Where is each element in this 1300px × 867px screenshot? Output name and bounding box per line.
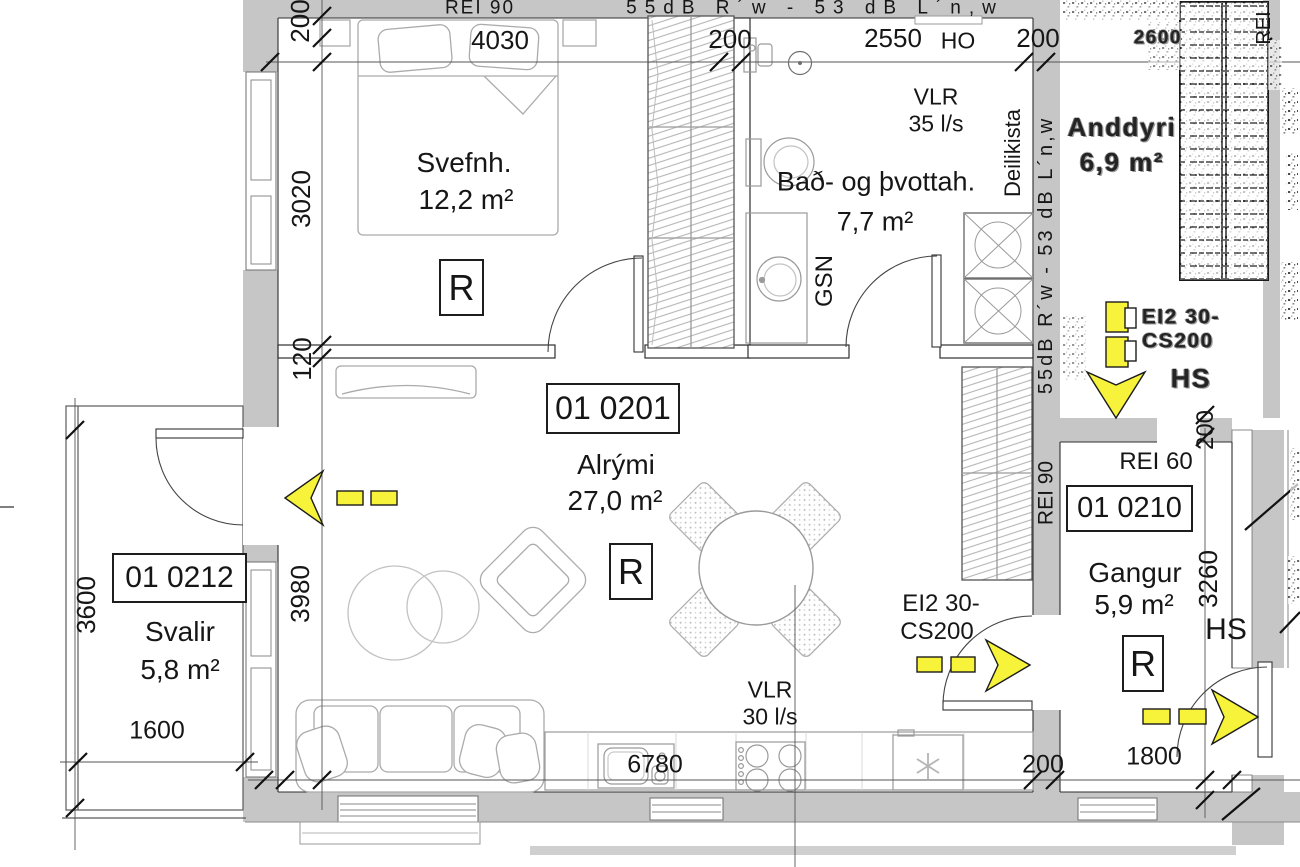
dim-svalir-3600: 3600 [73, 576, 99, 634]
dim-kitchen-200: 200 [1022, 753, 1064, 778]
fire-door-noisy-line1: EI2 30- [1142, 307, 1220, 328]
room-area-alrymi: 27,0 m² [568, 487, 663, 515]
sound-rating-top: 55dB R´w - 53 dB L´n,w [626, 0, 1004, 18]
room-area-anddyri: 6,9 m² [1080, 149, 1164, 175]
room-id-gangur: 01 0210 [1066, 485, 1193, 532]
dim-left-3020: 3020 [288, 170, 314, 228]
rug [348, 566, 479, 660]
dim-left-200: 200 [287, 0, 313, 43]
room-area-svalir: 5,8 m² [140, 656, 219, 684]
sideboard [336, 366, 476, 398]
exit-arrow-right-livingroom-icon [917, 640, 1030, 691]
dim-left-3980: 3980 [287, 565, 313, 623]
dim-gangur-200: 200 [1194, 410, 1218, 450]
washer-dryer [964, 213, 1033, 343]
room-id-gangur-text: 01 0210 [1077, 492, 1182, 525]
room-id-alrymi-text: 01 0201 [555, 390, 671, 427]
exit-arrow-down-icon [1087, 302, 1145, 418]
label-ho: HO [941, 30, 976, 53]
floor-plan: REI 90 55dB R´w - 53 dB L´n,w 4030 200 2… [0, 0, 1300, 867]
fire-rating-top-rei: REI 90 [445, 0, 515, 18]
fire-rating-stair: REI [1254, 11, 1274, 44]
dim-gangur-1800: 1800 [1126, 745, 1182, 770]
fire-door-label-line1: EI2 30- [902, 592, 979, 616]
label-gsn: GSN [813, 255, 837, 307]
dim-corridor-2600: 2600 [1134, 29, 1182, 48]
armchair [475, 522, 591, 638]
radiator-letter: R [1130, 643, 1156, 685]
radiator-symbol-gangur: R [1122, 635, 1164, 692]
dim-svalir-1600: 1600 [129, 719, 185, 744]
fire-door-noisy-line2: CS200 [1142, 331, 1214, 352]
room-name-anddyri: Anddyri [1068, 114, 1177, 140]
label-hs-corridor: HS [1171, 366, 1212, 393]
dim-top-2550: 2550 [864, 25, 922, 51]
room-name-svefnherbergi: Svefnh. [417, 149, 512, 177]
sofa [293, 700, 544, 792]
room-name-bad: Bað- og þvottah. [777, 169, 975, 196]
vent-bath-line1: VLR [914, 86, 959, 109]
fire-door-label-line2: CS200 [900, 620, 973, 644]
exit-arrow-left-icon [285, 471, 397, 525]
room-id-alrymi: 01 0201 [546, 383, 680, 434]
dimension-point-symbol [789, 52, 812, 75]
vent-kitchen-line2: 30 l/s [743, 706, 798, 729]
label-hs-gangur: HS [1205, 615, 1247, 645]
room-area-svefnherbergi: 12,2 m² [419, 186, 514, 214]
dim-top-200a: 200 [708, 26, 751, 52]
dim-top-4030: 4030 [471, 27, 529, 53]
room-id-svalir-text: 01 0212 [125, 561, 233, 595]
label-deilikista: Deilikista [1002, 109, 1024, 197]
dim-left-120: 120 [289, 337, 315, 380]
sound-rating-right-wall: 55dB R´w - 53 dB L´n,w [1036, 116, 1056, 394]
bathroom-sink [746, 213, 807, 343]
radiator-letter: R [618, 551, 644, 593]
room-name-gangur: Gangur [1088, 559, 1181, 587]
dim-kitchen-6780: 6780 [627, 753, 683, 778]
vent-bath-line2: 35 l/s [909, 113, 964, 136]
dim-top-200b: 200 [1016, 25, 1059, 51]
radiator-symbol-bedroom: R [439, 259, 484, 316]
room-id-svalir: 01 0212 [112, 553, 247, 603]
room-name-svalir: Svalir [145, 618, 215, 646]
fire-rating-gangur: REI 60 [1119, 450, 1192, 474]
vent-kitchen-line1: VLR [748, 679, 793, 702]
exit-arrow-right-hall-icon [1143, 690, 1258, 744]
room-area-bad: 7,7 m² [837, 209, 914, 236]
dim-gangur-3260: 3260 [1195, 550, 1221, 608]
radiator-letter: R [449, 267, 475, 309]
dining-set [667, 480, 843, 659]
fire-rating-right-wall: REI 90 [1036, 461, 1057, 525]
kitchen-counter [545, 730, 1033, 791]
room-area-gangur: 5,9 m² [1094, 591, 1173, 619]
radiator-symbol-livingroom: R [609, 543, 653, 600]
room-name-alrymi: Alrými [577, 451, 655, 479]
